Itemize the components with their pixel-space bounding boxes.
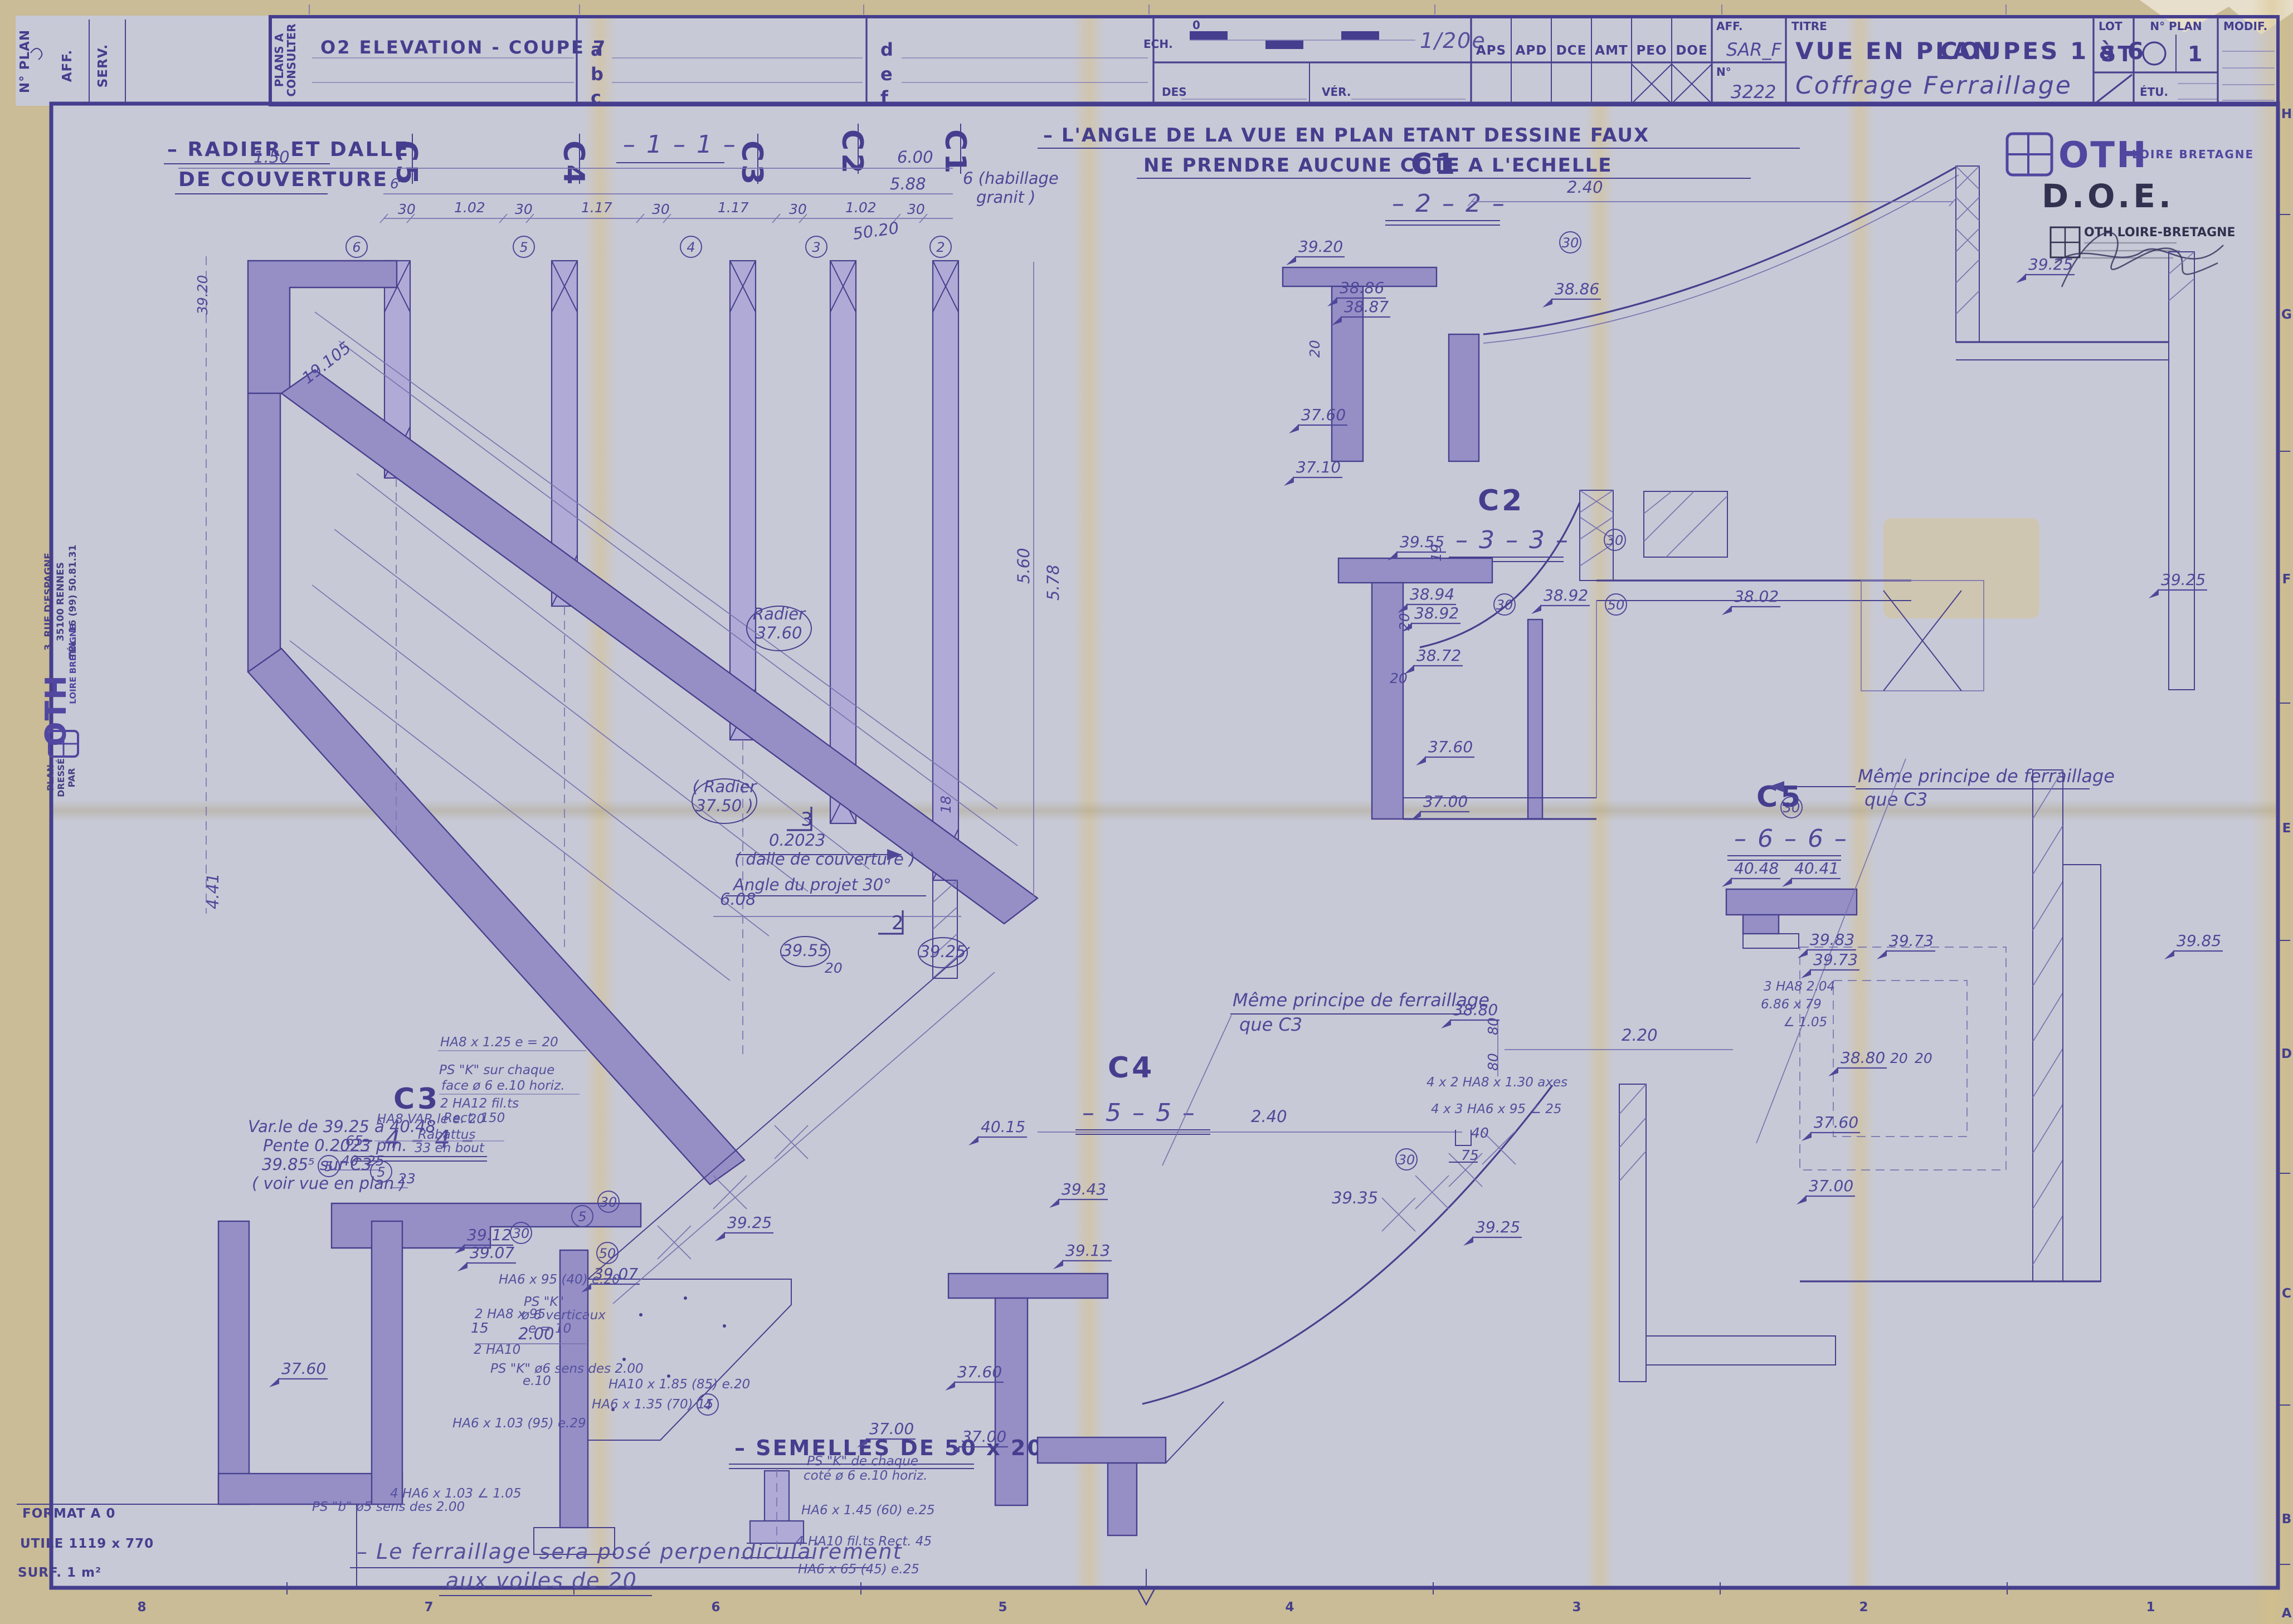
wall-left <box>248 393 280 672</box>
elevation-flag-text: 38.87 <box>1344 298 1389 316</box>
circled-ref-text: 5 <box>519 240 528 255</box>
oth-region: LOIRE BRETAGNE <box>2132 148 2254 161</box>
ferraillage-note-line2: que C3 <box>1239 1014 1302 1035</box>
handwritten-note-text: 6.00 <box>897 148 933 167</box>
handwritten-note-text: 2.00 <box>518 1324 554 1343</box>
rebar-callout-text: HA8 VAR.le e. 20 <box>377 1112 485 1126</box>
elevation-flag-text: 39.13 <box>1065 1241 1110 1260</box>
elevation-flag-text: 38.94 <box>1410 585 1454 603</box>
elevation-flag-text: 39.25 <box>2028 255 2073 274</box>
handwritten-note-text: 2.20 <box>1622 1026 1658 1045</box>
dimension-label-text: 80 <box>1485 1053 1501 1071</box>
dimension-label-text: 1.02 <box>845 199 877 216</box>
dimension-label: 1.17 <box>718 199 749 216</box>
handwritten-note-text: 5.78 <box>1044 564 1063 601</box>
circled-ref-text: 5 <box>578 1209 586 1225</box>
circled-ref-text: 30 <box>1562 235 1579 251</box>
rebar-callout: 6.86 x 79 <box>1761 997 1822 1012</box>
grid-letter: H <box>2281 107 2292 121</box>
dimension-label-text: 30 <box>398 201 416 217</box>
rebar-callout: Rabattus <box>418 1128 475 1142</box>
row-letter: e <box>880 64 894 85</box>
handwritten-note: Radier <box>753 604 806 623</box>
circled-ref: 30 <box>1396 1149 1417 1170</box>
rebar-callout-text: HA6 x 1.45 (60) e.25 <box>801 1503 935 1518</box>
handwritten-note-text: ( Radier <box>693 777 758 796</box>
circled-ref: 50 <box>1605 594 1627 615</box>
elevation-flag-text: 39.43 <box>1062 1180 1106 1198</box>
dimension-label: 20 <box>1915 1050 1932 1066</box>
dimension-label: 15 <box>471 1320 489 1336</box>
elevation-flag-text: 38.80 <box>1453 1001 1498 1019</box>
row-letter: a <box>591 39 605 60</box>
handwritten-note-text: 4.41 <box>203 873 222 909</box>
dimension-label-text: 15 <box>471 1320 489 1336</box>
rebar-callout-text: 33 en bout <box>415 1141 485 1155</box>
dimension-label-text: 30 <box>907 201 925 217</box>
phase-label: DCE <box>1556 43 1587 58</box>
grid-letter: C <box>2282 1286 2292 1301</box>
grid-letter: F <box>2282 572 2292 587</box>
handwritten-note: 1.50 <box>254 148 290 167</box>
section-2-2-title: – 2 – 2 – <box>1392 189 1506 218</box>
circled-ref-text: 3 <box>812 240 820 255</box>
rebar-callout: 3 HA8 2.04 <box>1764 979 1835 994</box>
section-3-3-title: – 3 – 3 – <box>1455 526 1570 554</box>
dimension-label-text: 1.17 <box>718 199 749 216</box>
address-line1: 3, RUE D'ESPAGNE <box>43 553 54 651</box>
rebar-callout: HA10 x 1.85 (85) e.20 <box>608 1377 750 1392</box>
plans-label-1: PLANS A <box>272 33 286 87</box>
column-label: C2 <box>835 129 869 176</box>
rebar-callout: 2 HA12 fil.ts <box>440 1096 519 1111</box>
section-6-6-title: – 6 – 6 – <box>1734 825 1848 853</box>
handwritten-note: 37.50 ) <box>695 796 753 815</box>
dimension-label: 20 <box>1396 613 1413 631</box>
dimension-label: 30 <box>789 201 807 217</box>
rebar-callout-text: coté ø 6 e.10 horiz. <box>804 1469 927 1483</box>
elevation-flag-text: 37.60 <box>957 1363 1002 1381</box>
rebar-callout: face ø 6 e.10 horiz. <box>441 1079 565 1093</box>
dimension-label-text: 20 <box>1890 1050 1908 1066</box>
circled-ref-text: 2 <box>936 240 945 255</box>
phase-label: PEO <box>1636 43 1667 58</box>
dimension-label-text: 1.17 <box>581 199 612 216</box>
handwritten-note: Angle du projet 30° <box>732 875 892 894</box>
section-1-1-title: – 1 – 1 – <box>623 130 737 159</box>
dimension-label: 39.20 <box>194 275 211 315</box>
row-letter: d <box>880 39 895 60</box>
rebar-callout-text: 6.86 x 79 <box>1761 997 1822 1012</box>
rebar-callout-text: HA6 x 1.35 (70) 15 <box>592 1397 713 1412</box>
dimension-label-text: 23 <box>398 1171 416 1187</box>
elevation-flag-text: 39.83 <box>1810 930 1854 949</box>
elevation-flag-text: 38.86 <box>1340 279 1384 297</box>
scale-bar-segment <box>1265 40 1303 49</box>
lot-label: LOT <box>2099 19 2122 33</box>
section-ref-number-text: 3 <box>801 808 813 831</box>
lot-value: ST <box>2101 42 2134 66</box>
handwritten-note-text: 37.50 ) <box>695 796 753 815</box>
handwritten-note-text: 39.35 <box>1332 1188 1378 1207</box>
aff-field-label: AFF. <box>1716 19 1742 33</box>
rebar-callout: 4 HA6 x 1.03 ∠ 1.05 <box>390 1486 522 1501</box>
aff-value: SAR_F <box>1726 39 1781 60</box>
rebar-callout-text: 4 x 3 HA6 x 95 ∠ 25 <box>1431 1102 1561 1116</box>
ech-label: ECH. <box>1143 37 1173 51</box>
elevation-flag-text: 39.25 <box>1476 1218 1520 1236</box>
circled-ref-text: 5 <box>324 1159 333 1174</box>
ferraillage-note-line1: Même principe de ferraillage <box>1233 989 1489 1011</box>
elevation-flag-text: 39.20 <box>1298 237 1343 256</box>
section-4-4-name: C3 <box>393 1082 440 1116</box>
dimension-label: 65 <box>345 1133 363 1149</box>
handwritten-note: 39.35 <box>1332 1188 1378 1207</box>
dimension-label-text: 39.20 <box>194 275 211 315</box>
handwritten-note: 2.00 <box>518 1324 554 1343</box>
elevation-flag-text: 40.41 <box>1794 859 1839 877</box>
handwritten-note: 2.20 <box>1622 1026 1658 1045</box>
elevation-flag-text: 37.60 <box>1814 1113 1858 1132</box>
section-ref-number: 2 <box>892 912 904 934</box>
utile-label: UTILE 1119 x 770 <box>20 1537 154 1551</box>
dimension-label: 20 <box>825 960 843 976</box>
dimension-label-text: 20 <box>1307 340 1323 358</box>
drawing-title-line2: Coffrage Ferraillage <box>1795 71 2072 100</box>
dimension-label: 30 <box>652 201 670 217</box>
dimension-label-text: 65 <box>345 1133 363 1149</box>
ver-label: VÉR. <box>1322 85 1351 99</box>
dimension-label-text: 20 <box>825 960 843 976</box>
elevation-flag-text: 37.60 <box>1428 738 1473 756</box>
rebar-callout: 4 x 3 HA6 x 95 ∠ 25 <box>1431 1102 1561 1116</box>
handwritten-note: 2.40 <box>1567 178 1603 197</box>
scale-bar-segment <box>1190 31 1228 40</box>
dimension-label: 20 <box>1390 670 1408 686</box>
rebar-callout-text: 2 HA10 <box>474 1343 520 1357</box>
elevation-flag-text: 39.25 <box>727 1213 772 1232</box>
grid-number: 8 <box>137 1600 147 1615</box>
dimension-label: 80 <box>1485 1053 1501 1071</box>
elevation-flag-text: 39.85 <box>2177 932 2221 950</box>
dimension-label: 19 <box>1428 544 1444 562</box>
grid-letter: B <box>2282 1512 2292 1527</box>
elevation-flag-text: 38.02 <box>1734 587 1779 606</box>
handwritten-note-text: granit ) <box>976 188 1035 207</box>
circled-ref: 50 <box>597 1242 618 1264</box>
rebar-callout: coté ø 6 e.10 horiz. <box>804 1469 927 1483</box>
dimension-label-text: 40 <box>1471 1125 1489 1141</box>
circled-ref-text: 30 <box>1606 533 1624 548</box>
scale-bar-segment <box>1341 31 1379 40</box>
n-plan-label: N° PLAN <box>18 30 32 93</box>
rebar-callout: ∠ 1.05 <box>1783 1015 1827 1030</box>
handwritten-note: ( Radier <box>693 777 758 796</box>
row-letter: b <box>591 64 605 85</box>
handwritten-note-text: 0.2023 <box>769 831 825 850</box>
dimension-label: 20 <box>1890 1050 1908 1066</box>
elevation-flag-text: 39.12 <box>467 1226 512 1244</box>
dimension-label: 40 <box>1471 1125 1489 1141</box>
handwritten-note: 39.55 <box>782 941 828 960</box>
handwritten-note: 5.60 <box>1014 548 1033 584</box>
circled-ref: 30 <box>598 1191 619 1212</box>
elevation-flag-text: 37.60 <box>281 1359 326 1378</box>
elevation-flag-text: 40.48 <box>1734 859 1779 877</box>
dimension-label-text: 6 <box>390 175 399 192</box>
column-label: C4 <box>557 140 590 187</box>
etu-label: ÉTU. <box>2140 85 2168 99</box>
section-ref-number-text: 2 <box>892 912 904 934</box>
rebar-callout: HA8 VAR.le e. 20 <box>377 1112 485 1126</box>
rebar-callout-text: PS "K" ø6 sens des 2.00 <box>490 1362 644 1376</box>
bottom-note-line2: aux voiles de 20 <box>446 1568 637 1593</box>
handwritten-note: granit ) <box>976 188 1035 207</box>
dimension-label-text: 75 <box>1461 1147 1479 1163</box>
dimension-label: 75 <box>1461 1147 1479 1163</box>
rebar-callout-text: ∠ 1.05 <box>1783 1015 1827 1030</box>
phase-label: APS <box>1476 43 1506 58</box>
rebar-callout: HA6 x 1.03 (95) e.29 <box>452 1416 586 1431</box>
handwritten-note: 37.60 <box>756 623 802 642</box>
handwritten-note-text: 2.40 <box>1567 178 1603 197</box>
n-field-label: N° <box>1716 65 1731 79</box>
rebar-callout-text: 4 x 2 HA8 x 1.30 axes <box>1427 1075 1567 1090</box>
grid-letter: D <box>2281 1047 2292 1061</box>
elevation-flag-text: 39.07 <box>470 1243 514 1262</box>
dimension-label-text: 30 <box>652 201 670 217</box>
blueprint-sheet: H G F E D C B A 8 7 6 5 4 3 2 1 N° PLAN … <box>0 0 2293 1624</box>
circled-ref-text: 5 <box>377 1164 385 1180</box>
rebar-callout-text: HA8 x 1.25 e = 20 <box>440 1035 558 1050</box>
handwritten-note-text: Angle du projet 30° <box>732 875 892 894</box>
dimension-label: 40 <box>341 1153 359 1169</box>
dimension-label-text: 18 <box>938 796 954 813</box>
elevation-flag-text: 38.92 <box>1544 586 1588 604</box>
handwritten-note: 6.00 <box>897 148 933 167</box>
warning-line1: – L'ANGLE DE LA VUE EN PLAN ETANT DESSIN… <box>1043 124 1649 147</box>
rebar-callout-text: Rabattus <box>418 1128 475 1142</box>
rebar-callout-text: 3 HA8 2.04 <box>1764 979 1835 994</box>
elevation-flag-text: 38.86 <box>1555 280 1599 298</box>
circled-ref-text: 30 <box>1783 800 1800 816</box>
circled-ref-text: 30 <box>513 1226 530 1241</box>
elevation-flag-text: 37.00 <box>1423 792 1468 811</box>
dimension-label: 18 <box>938 796 954 813</box>
rebar-callout: e.10 <box>523 1374 551 1388</box>
dimension-label: 30 <box>398 201 416 217</box>
dimension-label: 6 <box>390 175 399 192</box>
scale-zero: 0 <box>1192 18 1200 32</box>
grid-number: 6 <box>711 1600 720 1615</box>
rebar-callout: PS "K" ø6 sens des 2.00 <box>490 1362 644 1376</box>
dimension-label-text: 40 <box>341 1153 359 1169</box>
handwritten-note-text: 1.50 <box>254 148 290 167</box>
handwritten-note-text: 5.60 <box>1014 548 1033 584</box>
grid-letter: E <box>2282 821 2292 836</box>
handwritten-note: 5.88 <box>890 174 926 193</box>
circled-ref: 30 <box>510 1222 532 1243</box>
rebar-callout-text: 4 HA10 fil.ts Rect. 45 <box>796 1534 932 1549</box>
elevation-flag-text: 38.72 <box>1416 646 1461 665</box>
titre-label: TITRE <box>1791 19 1827 33</box>
circled-ref-text: 50 <box>1608 597 1625 613</box>
paper-background <box>0 0 2293 1624</box>
des-label: DES <box>1162 85 1187 99</box>
dimension-label-text: 20 <box>1390 670 1408 686</box>
rebar-callout: HA6 x 95 (40) e.20 <box>499 1272 620 1287</box>
handwritten-note: 0.2023 <box>769 831 825 850</box>
rebar-callout: PS "b" ø5 sens des 2.00 <box>312 1500 465 1514</box>
circled-ref-text: 30 <box>1496 597 1513 613</box>
dimension-label-text: 20 <box>1396 613 1413 631</box>
rebar-callout-text: HA6 x 95 (40) e.20 <box>499 1272 620 1287</box>
phase-label: APD <box>1516 43 1547 58</box>
dimension-label-text: 30 <box>515 201 533 217</box>
handwritten-note: 4.41 <box>203 873 222 909</box>
dimension-label-text: 20 <box>1915 1050 1932 1066</box>
grid-letter: G <box>2281 308 2292 322</box>
handwritten-note-text: ( dalle de couverture ) <box>734 850 915 869</box>
dimension-label: 1.02 <box>845 199 877 216</box>
rebar-callout: HA6 x 65 (45) e.25 <box>798 1562 919 1577</box>
plan-dresse-1: PLAN <box>45 764 56 791</box>
circled-ref-text: 30 <box>600 1194 617 1210</box>
circled-ref-text: 50 <box>599 1246 616 1261</box>
handwritten-note-text: Radier <box>753 604 806 623</box>
rebar-callout: PS "K" sur chaque <box>439 1063 554 1077</box>
grid-number: 2 <box>1859 1600 1868 1615</box>
surface-label: SURF. 1 m² <box>18 1566 101 1580</box>
grid-number: 5 <box>998 1600 1007 1615</box>
section-5-5-name: C4 <box>1108 1051 1155 1085</box>
doe-stamp-text: D.O.E. <box>2042 177 2174 215</box>
plan-dresse-2: DRESSÉ <box>56 758 66 797</box>
rebar-callout-text: e.10 <box>523 1374 551 1388</box>
handwritten-note: 2.40 <box>1251 1107 1287 1126</box>
grid-number: 4 <box>1285 1600 1294 1615</box>
rebar-callout-text: HA6 x 1.03 (95) e.29 <box>452 1416 586 1431</box>
ferraillage-note-line2: que C3 <box>1864 789 1927 810</box>
rebar-callout: 4 x 2 HA8 x 1.30 axes <box>1427 1075 1567 1090</box>
dimension-label: 1.02 <box>454 199 485 216</box>
dimension-label-text: 30 <box>789 201 807 217</box>
section-2-2-name: C1 <box>1411 148 1458 181</box>
rebar-callout: 4 HA10 fil.ts Rect. 45 <box>796 1534 932 1549</box>
address-line2: 35100 RENNES <box>55 562 66 641</box>
handwritten-note-text: 37.60 <box>756 623 802 642</box>
dimension-label: 20 <box>1307 340 1323 358</box>
rebar-callout-text: 2 HA12 fil.ts <box>440 1096 519 1111</box>
elevation-flag-text: 38.92 <box>1414 604 1459 622</box>
rebar-callout-text: PS "b" ø5 sens des 2.00 <box>312 1500 465 1514</box>
oth-logo-text-left: OTH <box>40 674 73 746</box>
handwritten-note: 5.78 <box>1044 564 1063 601</box>
circled-ref: 30 <box>1494 594 1515 615</box>
grid-number: 1 <box>2146 1600 2155 1615</box>
warning-line2: NE PRENDRE AUCUNE COTE A L'ECHELLE <box>1143 154 1612 177</box>
circled-ref: 30 <box>1560 232 1581 253</box>
dimension-label: 23 <box>398 1171 416 1187</box>
dimension-label: 30 <box>907 201 925 217</box>
handwritten-note: 39.25 <box>919 942 966 961</box>
elevation-flag-text: 39.73 <box>1813 950 1858 969</box>
dimension-label: 30 <box>515 201 533 217</box>
phase-label: AMT <box>1595 43 1628 58</box>
n-value: 3222 <box>1731 81 1776 103</box>
elevation-flag-text: 37.00 <box>869 1420 914 1438</box>
handwritten-note: 6 (habillage <box>963 169 1059 188</box>
grid-number: 3 <box>1572 1600 1581 1615</box>
rebar-callout-text: 4 HA6 x 1.03 ∠ 1.05 <box>390 1486 522 1501</box>
rebar-callout: HA8 x 1.25 e = 20 <box>440 1035 558 1050</box>
circled-ref-text: 30 <box>1398 1152 1415 1168</box>
column-label: C3 <box>735 140 768 187</box>
modif-label: MODIF. <box>2223 19 2267 33</box>
elevation-flag-text: 37.10 <box>1296 458 1341 476</box>
grid-number: 7 <box>424 1600 434 1615</box>
circled-ref: 30 <box>1781 797 1802 818</box>
elevation-flag-text: 39.73 <box>1889 932 1934 950</box>
referenced-plan: O2 ELEVATION - COUPE 7 <box>320 37 607 58</box>
handwritten-note-text: 2.40 <box>1251 1107 1287 1126</box>
handwritten-note-text: 39.55 <box>782 941 828 960</box>
elevation-flag-text: 37.00 <box>962 1427 1006 1446</box>
rebar-callout-text: HA6 x 65 (45) e.25 <box>798 1562 919 1577</box>
serv-label: SERV. <box>96 44 110 88</box>
nplan-label: N° PLAN <box>2150 19 2202 33</box>
plan-dresse-3: PAR <box>66 768 77 788</box>
phase-label: DOE <box>1676 43 1707 58</box>
circled-ref-text: 4 <box>687 240 695 255</box>
format-label: FORMAT A 0 <box>22 1506 115 1521</box>
rebar-callout-text: PS "K" sur chaque <box>439 1063 554 1077</box>
handwritten-note-text: Pente 0.2023 pm. <box>263 1136 407 1155</box>
rebar-callout-text: HA10 x 1.85 (85) e.20 <box>608 1377 750 1392</box>
rebar-callout-text: PS "K" de chaque <box>807 1454 918 1469</box>
circled-ref-text: 4 <box>703 1397 712 1413</box>
radier-heading-2: DE COUVERTURE – <box>178 168 408 191</box>
section-5-5-title: – 5 – 5 – <box>1082 1099 1196 1127</box>
row-letter: f <box>880 87 890 108</box>
section-3-3-name: C2 <box>1478 484 1525 518</box>
row-letter: c <box>591 87 603 108</box>
handwritten-note: Pente 0.2023 pm. <box>263 1136 407 1155</box>
handwritten-note: ( dalle de couverture ) <box>734 850 915 869</box>
rebar-callout: 2 HA10 <box>474 1343 520 1357</box>
grid-letter: A <box>2282 1606 2292 1621</box>
dimension-label-text: 19 <box>1428 544 1444 562</box>
plans-label-2: CONSULTER <box>285 23 298 96</box>
aff-label: AFF. <box>60 50 75 82</box>
handwritten-note-text: 6 (habillage <box>963 169 1059 188</box>
elevation-flag-text: 38.80 <box>1841 1048 1885 1067</box>
rebar-callout-text: face ø 6 e.10 horiz. <box>441 1079 565 1093</box>
elevation-flag-text: 39.25 <box>2161 570 2206 589</box>
circled-ref-text: 6 <box>352 240 361 255</box>
elevation-flag-text: 40.15 <box>981 1118 1025 1136</box>
section-ref-number: 3 <box>801 808 813 831</box>
dimension-label-text: 1.02 <box>454 199 485 216</box>
rebar-callout: HA6 x 1.35 (70) 15 <box>592 1397 713 1412</box>
dimension-label: 1.17 <box>581 199 612 216</box>
circled-ref: 30 <box>1604 529 1625 550</box>
rebar-callout: PS "K" de chaque <box>807 1454 918 1469</box>
rebar-callout: 33 en bout <box>415 1141 485 1155</box>
handwritten-note-text: 39.25 <box>919 942 966 961</box>
handwritten-note-text: 5.88 <box>890 174 926 193</box>
elevation-flag-text: 37.00 <box>1809 1177 1853 1195</box>
